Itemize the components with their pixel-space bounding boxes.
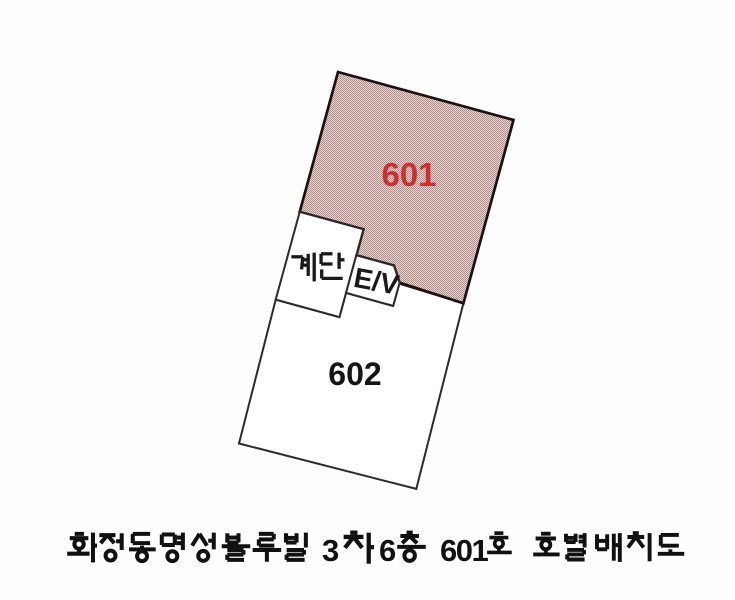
svg-text:602: 602 (328, 356, 381, 392)
svg-text:601: 601 (440, 533, 488, 568)
svg-text:6: 6 (379, 533, 396, 568)
svg-text:3: 3 (322, 533, 339, 568)
svg-text:601: 601 (381, 156, 436, 193)
